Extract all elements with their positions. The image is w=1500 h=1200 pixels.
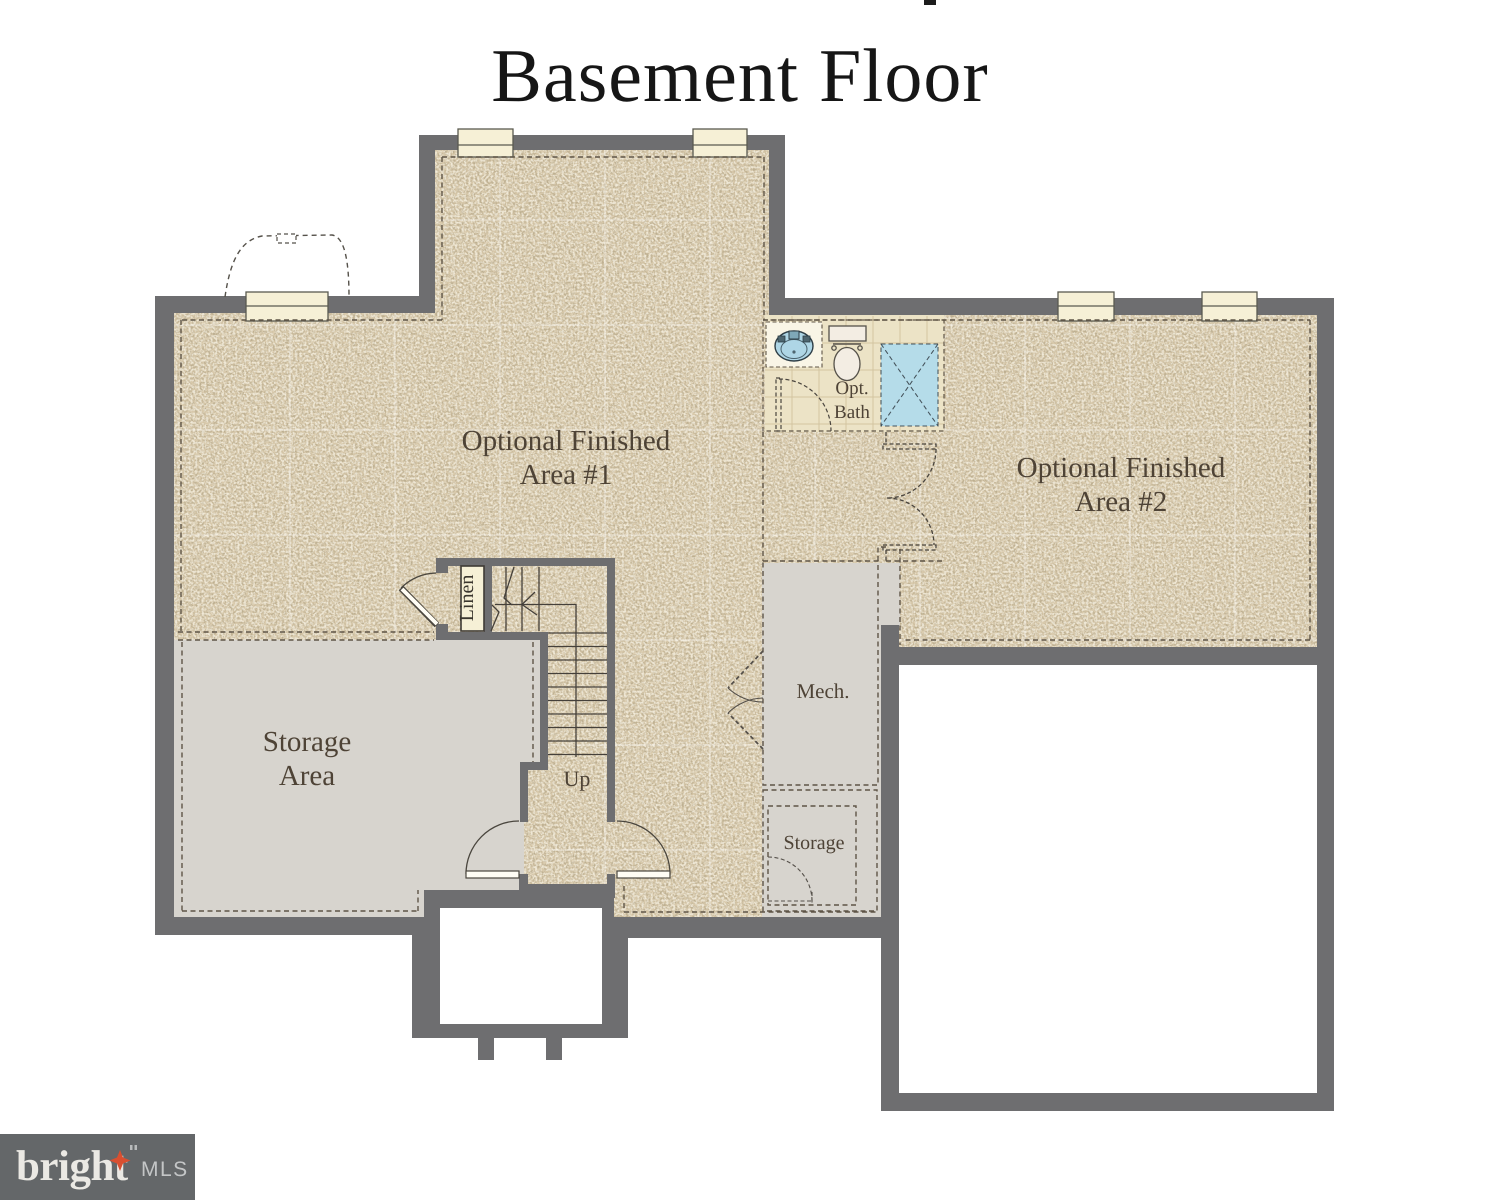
svg-text:Basement Floor: Basement Floor (491, 34, 988, 118)
svg-text:bright: bright (16, 1143, 129, 1190)
svg-text:Optional Finished: Optional Finished (1017, 452, 1226, 484)
svg-text:Bath: Bath (834, 402, 870, 423)
svg-text:Linen: Linen (456, 575, 478, 622)
svg-text:Up: Up (564, 766, 591, 791)
svg-text:Storage: Storage (263, 726, 352, 758)
svg-text:Optional Finished: Optional Finished (462, 425, 671, 457)
svg-text:Area #1: Area #1 (520, 459, 613, 491)
svg-text:Mech.: Mech. (796, 679, 849, 703)
svg-text:Area #2: Area #2 (1075, 486, 1168, 518)
svg-text:Opt.: Opt. (835, 378, 868, 399)
svg-text:Storage: Storage (783, 832, 844, 854)
svg-text:MLS: MLS (141, 1158, 189, 1181)
svg-text:Area: Area (279, 760, 335, 792)
